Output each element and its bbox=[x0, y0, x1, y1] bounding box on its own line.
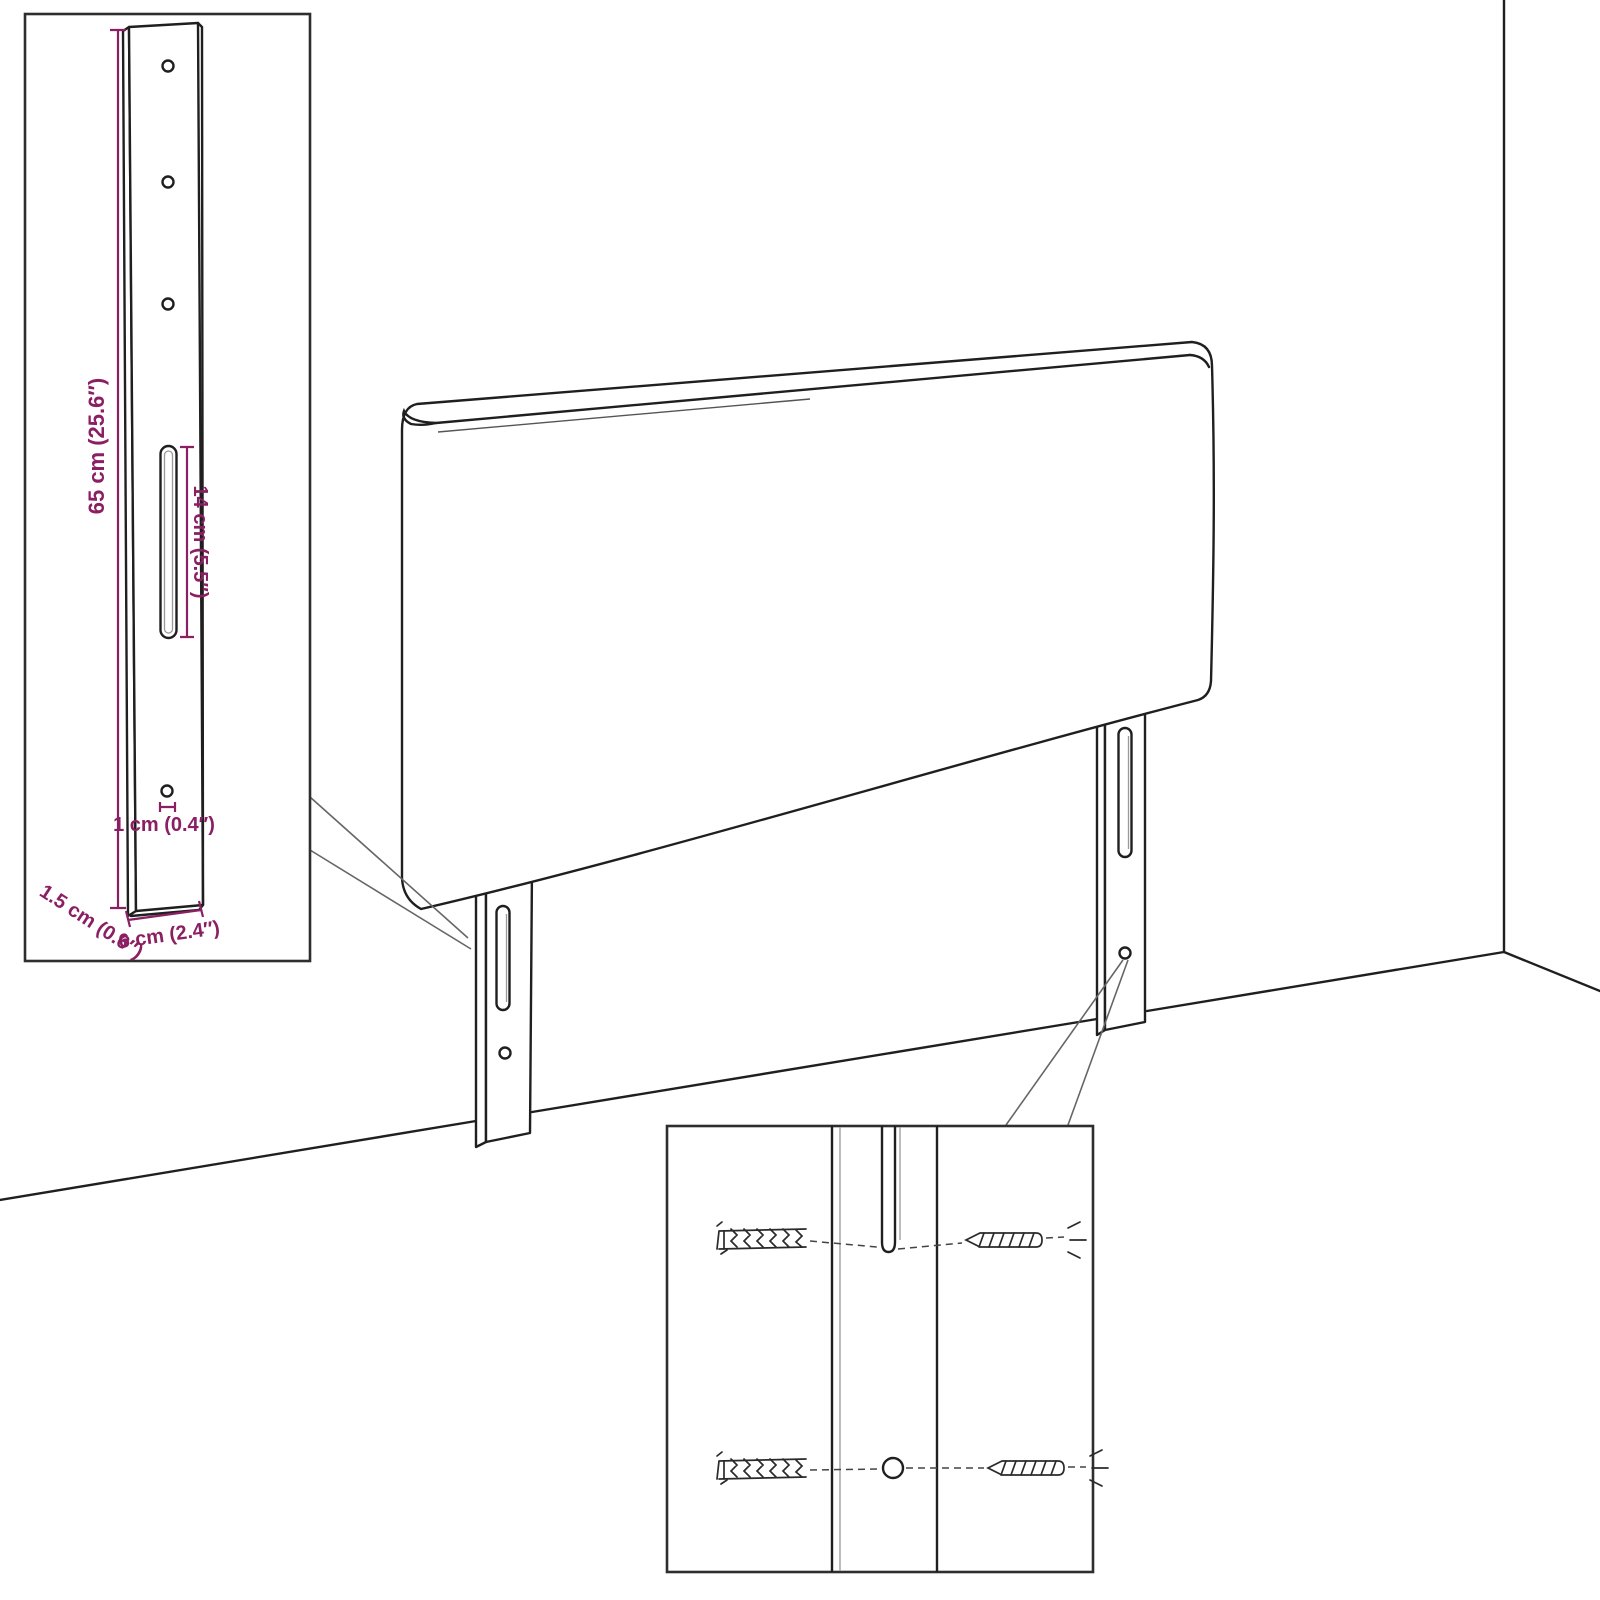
floor-line-left-segment3 bbox=[1147, 952, 1504, 1011]
left-leg-side-face bbox=[476, 872, 486, 1147]
headboard bbox=[402, 342, 1214, 909]
bracket-dimension-inset: 65 cm (25.6″) 14 cm (5.5″) 1 cm (0.4″) 1… bbox=[25, 14, 310, 963]
hardware-detail-inset bbox=[667, 1126, 1108, 1572]
left-leg-slot bbox=[497, 906, 510, 1010]
floor-line-left-segment2 bbox=[532, 1019, 1097, 1112]
right-leg bbox=[1097, 683, 1145, 1035]
product-dimension-diagram: 65 cm (25.6″) 14 cm (5.5″) 1 cm (0.4″) 1… bbox=[0, 0, 1600, 1600]
floor-line-right bbox=[1504, 952, 1600, 991]
leader-line-hole-to-inset-a bbox=[1006, 960, 1123, 1125]
dim-slot-label: 14 cm (5.5″) bbox=[189, 486, 211, 599]
headboard-panel bbox=[402, 342, 1214, 909]
bracket-slot bbox=[161, 446, 177, 638]
dim-hole-label: 1 cm (0.4″) bbox=[113, 814, 215, 836]
hardware-inset-frame bbox=[667, 1126, 1093, 1572]
floor-line-left-segment1 bbox=[0, 1121, 476, 1200]
right-leg-slot bbox=[1119, 728, 1132, 857]
diagram-svg: 65 cm (25.6″) 14 cm (5.5″) 1 cm (0.4″) 1… bbox=[0, 0, 1600, 1600]
dim-height-label: 65 cm (25.6″) bbox=[84, 378, 109, 515]
left-leg bbox=[476, 868, 532, 1147]
